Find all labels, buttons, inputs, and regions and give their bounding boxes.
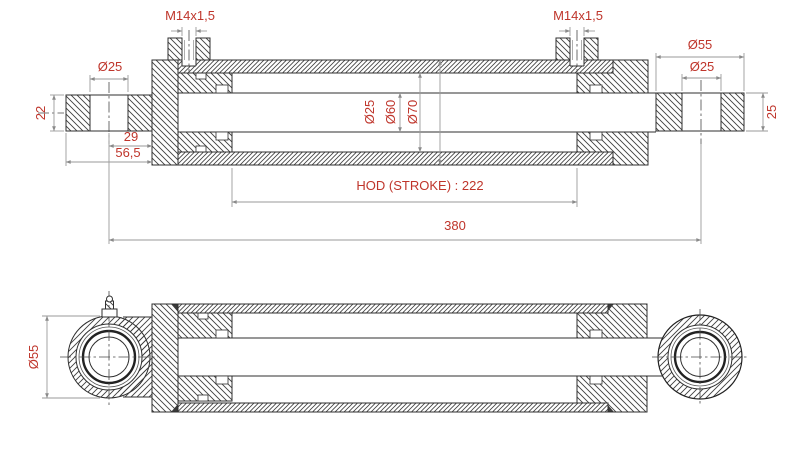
left-head-gland: [152, 60, 232, 165]
right-ball-joint-eye: [652, 309, 748, 405]
dim-left-eye-width-label: 22: [33, 106, 48, 120]
dim-pin-to-face-label: 29: [124, 129, 138, 144]
bottom-view-section: Ø55: [26, 291, 748, 412]
grease-nipple: [102, 296, 117, 317]
dim-right-eye-bore-label: Ø25: [690, 59, 715, 74]
dim-left-eye-bore-label: Ø25: [98, 59, 123, 74]
dim-right-eye-od-label: Ø55: [688, 37, 713, 52]
piston-rod: [232, 93, 656, 132]
dim-bore-dia-label: Ø60: [383, 100, 398, 125]
dim-bottom-eye-od-label: Ø55: [26, 345, 41, 370]
dim-stroke-label: HOD (STROKE) : 222: [356, 178, 483, 193]
cylinder-drawing-svg: M14x1,5 M14x1,5 Ø25 22 29 56,5: [0, 0, 800, 450]
bottom-left-head-gland: [152, 304, 232, 412]
dim-port-right-label: M14x1,5: [553, 8, 603, 23]
dim-eye-to-face-label: 56,5: [115, 145, 140, 160]
technical-drawing-canvas: M14x1,5 M14x1,5 Ø25 22 29 56,5: [0, 0, 800, 450]
dim-rod-dia-label: Ø25: [362, 100, 377, 125]
bottom-piston-rod: [232, 338, 662, 376]
dim-port-left-label: M14x1,5: [165, 8, 215, 23]
dim-barrel-od-label: Ø70: [405, 100, 420, 125]
dim-overall-length-label: 380: [444, 218, 466, 233]
top-view-section: M14x1,5 M14x1,5 Ø25 22 29 56,5: [33, 8, 779, 244]
right-rod-eye: [656, 93, 744, 131]
dim-right-eye-width-label: 25: [764, 105, 779, 119]
